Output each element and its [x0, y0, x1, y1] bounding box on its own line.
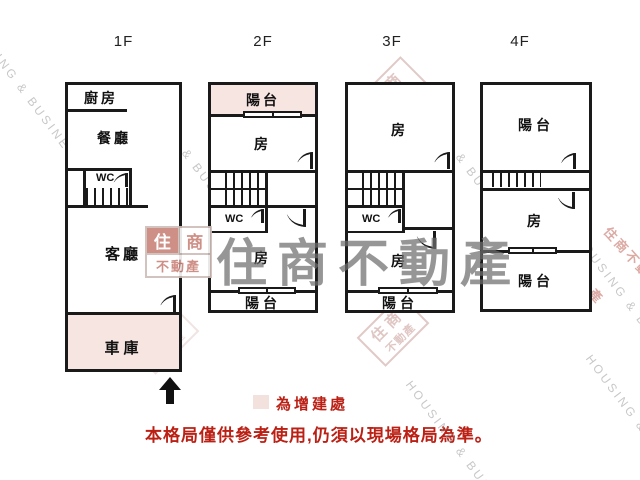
wall	[483, 188, 589, 191]
room-label-living: 客廳	[105, 243, 141, 264]
brand-logo-char-2: 商	[178, 228, 211, 253]
wall	[68, 168, 132, 171]
room-label-dining: 餐廳	[97, 128, 131, 148]
stairs-lower-run	[225, 190, 265, 205]
door-arc-icon	[250, 209, 264, 223]
brand-logo-char-1: 住	[147, 228, 178, 253]
stairs	[86, 188, 129, 205]
legend-addition-label: 為增建處	[276, 393, 348, 414]
room-garage-addition: 車庫	[68, 312, 179, 369]
brand-logo-bottom: 不動產	[147, 253, 210, 276]
room-label-balcony-front: 陽台	[246, 90, 280, 110]
door-arc-icon	[113, 173, 128, 187]
room-label-garage: 車庫	[68, 337, 179, 358]
room-label-balcony-front: 陽台	[483, 115, 589, 135]
door-arc-icon	[557, 192, 575, 209]
door-arc-icon	[433, 152, 450, 169]
floor-title-1f: 1F	[65, 33, 182, 50]
wall	[68, 205, 148, 208]
stairs-upper-run	[225, 173, 265, 188]
housing-business-watermark: HOUSING & BUSINESS	[583, 352, 640, 480]
floor-title-2f: 2F	[208, 33, 318, 50]
door-arc-icon	[387, 209, 401, 223]
entrance-up-arrow-icon	[159, 377, 181, 404]
brand-logo-watermark: 住 商 不動產	[145, 226, 212, 278]
room-label-wc: WC	[96, 172, 114, 184]
legend-addition-swatch	[253, 395, 269, 409]
door-arc-icon	[560, 153, 576, 169]
arrow-stem	[166, 389, 174, 404]
floorplan-sheet: 住商 不動產 住商 不動產 住商 不動產 住商 不動產 住商 不動產 HOUSI…	[0, 0, 640, 480]
room-label-balcony-rear: 陽台	[348, 293, 452, 313]
stairs-lower-run	[362, 190, 402, 205]
floor-title-4f: 4F	[464, 33, 576, 50]
door-arc-icon	[296, 152, 313, 169]
brand-watermark-text: 住商不動產	[216, 222, 521, 296]
room-balcony-front-addition: 陽台	[211, 85, 315, 114]
wall	[348, 205, 405, 208]
door-arc-icon	[159, 295, 176, 312]
wall	[211, 205, 315, 208]
wall	[129, 168, 132, 208]
wall	[68, 109, 127, 112]
window-icon	[243, 111, 302, 118]
stairs	[492, 173, 541, 187]
floor-title-3f: 3F	[337, 33, 447, 50]
room-label-balcony-rear: 陽台	[211, 293, 315, 313]
stairs-upper-run	[362, 173, 402, 188]
room-label-kitchen: 廚房	[84, 88, 118, 108]
room-label-front: 房	[211, 134, 315, 154]
room-label-front: 房	[348, 120, 452, 140]
